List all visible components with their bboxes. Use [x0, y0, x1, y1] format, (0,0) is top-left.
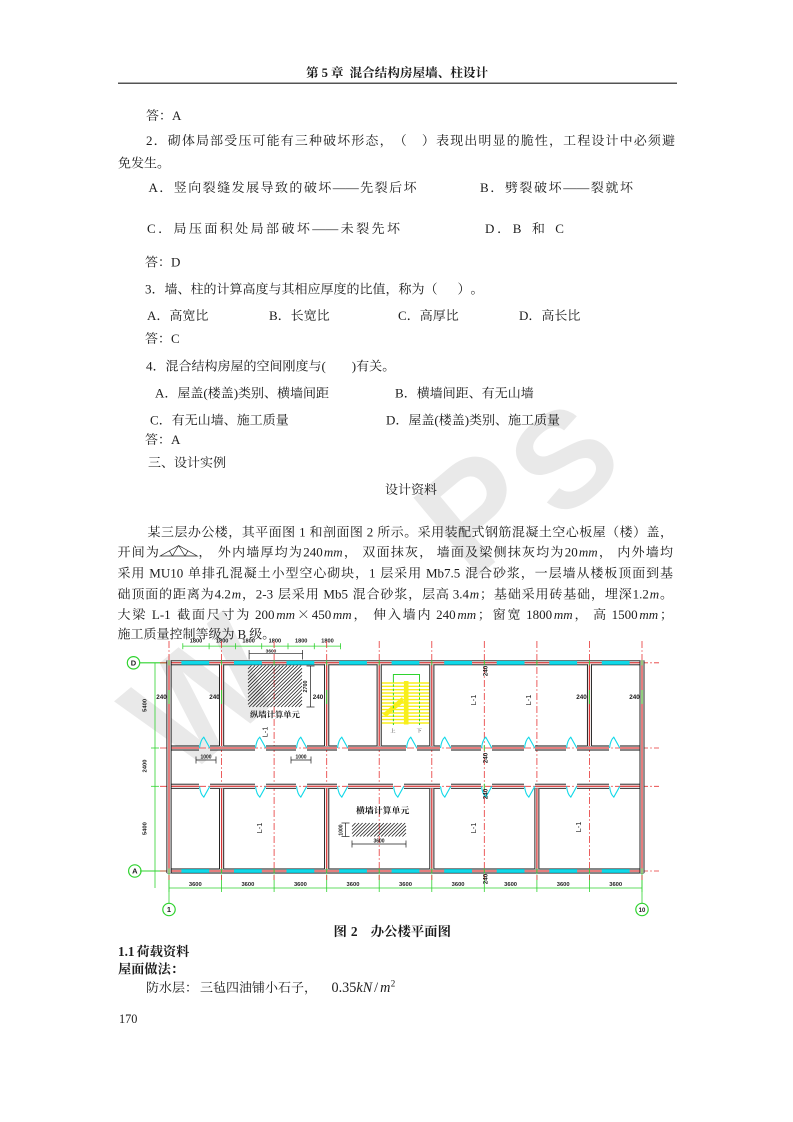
svg-text:2400: 2400	[143, 760, 149, 773]
svg-text:0.35: 0.35	[332, 980, 357, 996]
svg-text:5: 5	[322, 66, 328, 80]
svg-text:3600: 3600	[504, 882, 517, 888]
svg-text:3: 3	[145, 282, 152, 297]
svg-text:A: A	[147, 308, 157, 323]
svg-text:3600: 3600	[347, 882, 360, 888]
svg-text:MU10: MU10	[149, 566, 183, 581]
svg-text:L-1: L-1	[152, 607, 171, 622]
svg-text:C: C	[555, 221, 564, 236]
svg-text:(: (	[322, 359, 326, 374]
svg-text:240: 240	[313, 694, 324, 701]
svg-text:1800: 1800	[295, 639, 307, 645]
svg-text:10: 10	[639, 908, 646, 914]
svg-text:3.4: 3.4	[453, 587, 470, 602]
svg-text:2-3: 2-3	[256, 587, 273, 602]
svg-text:2700: 2700	[303, 681, 309, 693]
svg-text:L-1: L-1	[524, 695, 533, 706]
svg-text:2: 2	[351, 924, 358, 939]
svg-text:1800: 1800	[526, 607, 552, 622]
svg-text:170: 170	[119, 1012, 137, 1026]
svg-text:240: 240	[156, 694, 167, 701]
svg-text:450: 450	[312, 607, 332, 622]
svg-text:A: A	[171, 432, 181, 447]
svg-text:——: ——	[332, 180, 360, 195]
svg-text:2: 2	[391, 979, 396, 989]
svg-text:C: C	[398, 308, 407, 323]
svg-text:): )	[352, 359, 356, 374]
svg-text:L-1: L-1	[574, 822, 583, 833]
svg-text:1.2: 1.2	[633, 587, 649, 602]
svg-text:B: B	[513, 221, 522, 236]
svg-text:mm: mm	[457, 607, 476, 622]
svg-text:L-1: L-1	[261, 727, 270, 738]
svg-text:B: B	[480, 180, 489, 195]
svg-text:D: D	[131, 658, 137, 667]
svg-text:5400: 5400	[143, 699, 149, 712]
svg-text:B: B	[269, 308, 278, 323]
svg-text:C: C	[171, 331, 180, 346]
svg-text:(: (	[203, 386, 207, 401]
svg-text:2: 2	[146, 133, 153, 148]
svg-text:L-1: L-1	[255, 823, 264, 834]
svg-text:20: 20	[565, 545, 578, 560]
svg-text:3600: 3600	[557, 882, 570, 888]
svg-text:1: 1	[369, 566, 376, 581]
svg-text:D: D	[386, 413, 395, 428]
svg-text:m: m	[470, 587, 479, 602]
svg-text:/: /	[374, 980, 378, 996]
svg-text:3600: 3600	[452, 882, 465, 888]
svg-text:1000: 1000	[339, 824, 345, 835]
svg-text:240: 240	[483, 873, 490, 884]
svg-text:1.1: 1.1	[118, 944, 134, 959]
svg-text:C: C	[150, 413, 159, 428]
svg-text:D: D	[171, 255, 180, 270]
svg-text:5400: 5400	[143, 822, 149, 835]
svg-text:L-1: L-1	[469, 695, 478, 706]
svg-text:3600: 3600	[189, 882, 202, 888]
svg-text:240: 240	[209, 694, 220, 701]
svg-text:Mb7.5: Mb7.5	[426, 566, 460, 581]
svg-text:3600: 3600	[294, 882, 307, 888]
svg-text:L-1: L-1	[469, 823, 478, 834]
svg-text:1: 1	[167, 905, 171, 914]
svg-text:mm: mm	[639, 607, 658, 622]
svg-text:240: 240	[303, 545, 323, 560]
svg-text:1800: 1800	[242, 639, 254, 645]
svg-text:240: 240	[629, 694, 640, 701]
svg-text:C: C	[147, 221, 156, 236]
svg-text:m: m	[650, 587, 659, 602]
svg-text:3600: 3600	[266, 648, 277, 654]
svg-text:1800: 1800	[216, 639, 228, 645]
svg-text:4.2: 4.2	[215, 587, 231, 602]
svg-text:1800: 1800	[269, 639, 281, 645]
svg-text:): )	[465, 413, 469, 428]
svg-text:mm: mm	[324, 545, 343, 560]
svg-text:(: (	[434, 413, 438, 428]
svg-text:mm: mm	[554, 607, 573, 622]
svg-text:mm: mm	[276, 607, 295, 622]
svg-text:240: 240	[483, 788, 490, 799]
svg-text:3600: 3600	[241, 882, 254, 888]
svg-text:1000: 1000	[200, 755, 211, 761]
svg-text:240: 240	[576, 694, 587, 701]
svg-text:240: 240	[483, 752, 490, 763]
svg-text:200: 200	[255, 607, 275, 622]
svg-text:A: A	[149, 180, 159, 195]
svg-text:3600: 3600	[373, 839, 384, 845]
svg-text:3600: 3600	[399, 882, 412, 888]
svg-text:A: A	[155, 386, 165, 401]
svg-text:D: D	[485, 221, 494, 236]
svg-text:1800: 1800	[321, 639, 333, 645]
svg-text:): )	[234, 386, 238, 401]
svg-text:m: m	[232, 587, 241, 602]
svg-text:1: 1	[299, 525, 306, 540]
svg-text:kN: kN	[356, 980, 373, 996]
svg-text:1500: 1500	[612, 607, 638, 622]
svg-text:mm: mm	[333, 607, 352, 622]
svg-text:mm: mm	[579, 545, 598, 560]
svg-text:B: B	[395, 386, 404, 401]
svg-text:1000: 1000	[295, 755, 306, 761]
svg-text:A: A	[132, 867, 138, 876]
svg-text:——: ——	[311, 221, 339, 236]
svg-text:1800: 1800	[190, 639, 202, 645]
svg-text:240: 240	[436, 607, 456, 622]
svg-text:m: m	[380, 980, 390, 996]
svg-text:A: A	[172, 108, 182, 123]
svg-text:D: D	[519, 308, 528, 323]
svg-text:——: ——	[562, 180, 590, 195]
svg-text:Mb5: Mb5	[323, 587, 348, 602]
svg-text:4: 4	[146, 359, 153, 374]
svg-text:3600: 3600	[609, 882, 622, 888]
svg-text:240: 240	[483, 665, 490, 676]
svg-text:2: 2	[367, 525, 374, 540]
